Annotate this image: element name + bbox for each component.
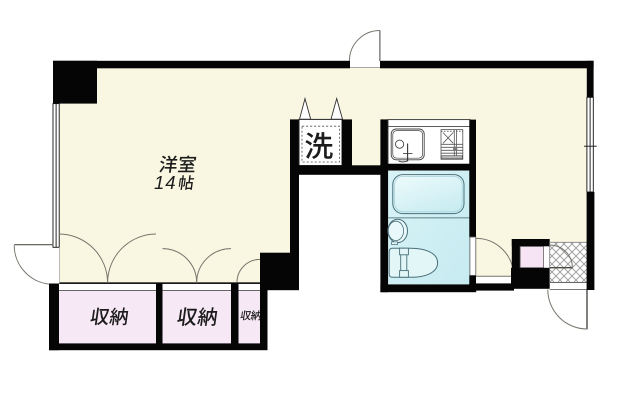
- svg-text:14: 14: [154, 172, 177, 193]
